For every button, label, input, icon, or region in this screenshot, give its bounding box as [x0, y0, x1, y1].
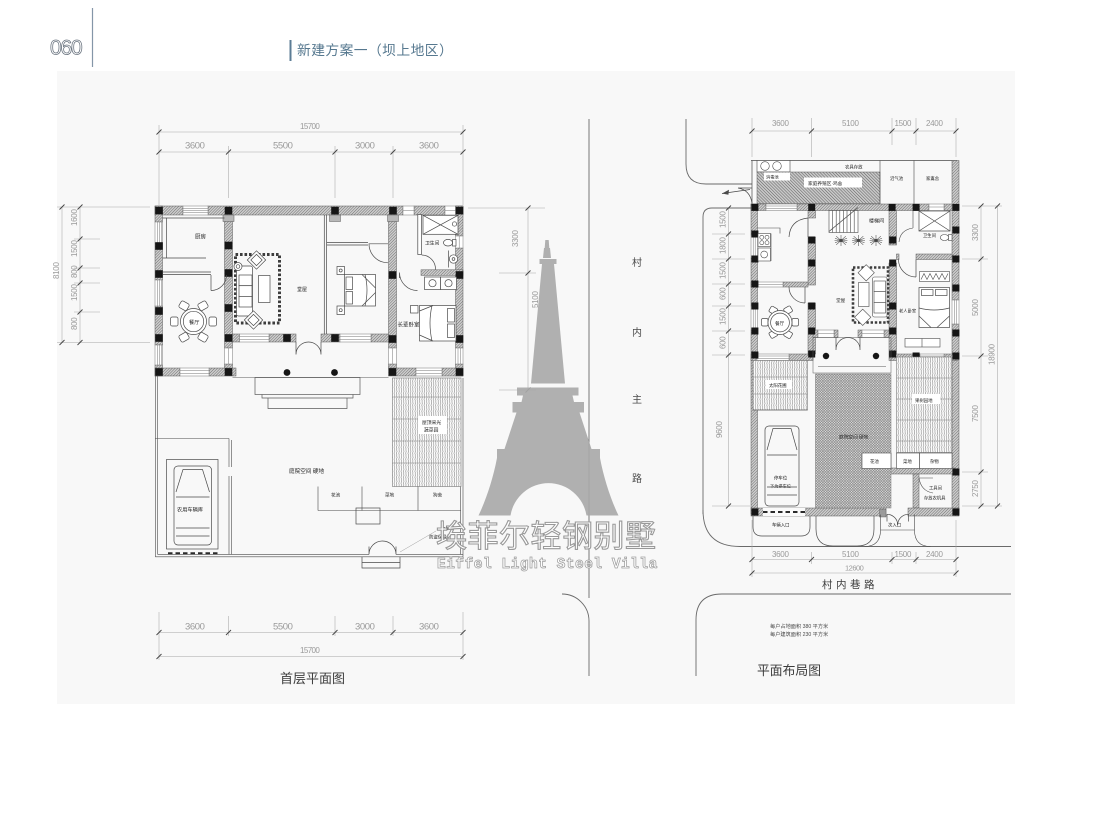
svg-text:3000: 3000	[355, 622, 375, 633]
svg-text:平面布局图: 平面布局图	[757, 663, 821, 678]
svg-text:路: 路	[632, 472, 642, 485]
svg-text:1500: 1500	[895, 119, 912, 128]
svg-text:每户建筑面积 230 平方米: 每户建筑面积 230 平方米	[770, 630, 829, 638]
svg-text:3000: 3000	[355, 141, 375, 152]
svg-text:1500: 1500	[895, 550, 912, 559]
svg-text:3300: 3300	[511, 230, 520, 247]
svg-text:家禽舍: 家禽舍	[926, 175, 940, 182]
svg-text:首层平面图: 首层平面图	[280, 671, 345, 686]
svg-text:1500: 1500	[70, 240, 79, 257]
svg-text:2400: 2400	[926, 550, 943, 559]
svg-text:1500: 1500	[719, 308, 728, 325]
svg-text:600: 600	[719, 336, 728, 349]
svg-text:5000: 5000	[971, 299, 980, 316]
svg-text:5100: 5100	[842, 119, 859, 128]
svg-text:1500: 1500	[719, 211, 728, 228]
svg-text:埃菲尔轻钢别墅: 埃菲尔轻钢别墅	[436, 519, 657, 554]
svg-text:太阳花圃: 太阳花圃	[769, 382, 787, 389]
svg-text:Eiffel Light Steel Villa: Eiffel Light Steel Villa	[437, 557, 658, 573]
svg-text:1500: 1500	[719, 262, 728, 279]
svg-text:车辆入口: 车辆入口	[772, 522, 790, 529]
svg-text:长辈卧室: 长辈卧室	[398, 321, 421, 329]
svg-text:下为停车位: 下为停车位	[770, 483, 791, 490]
svg-text:菜地: 菜地	[385, 492, 395, 499]
svg-text:花池: 花池	[331, 492, 341, 499]
svg-text:农具存放: 农具存放	[845, 164, 863, 171]
svg-text:花池: 花池	[870, 458, 879, 465]
svg-text:3600: 3600	[185, 141, 205, 152]
svg-text:内: 内	[632, 326, 642, 339]
svg-text:狗舍: 狗舍	[433, 492, 443, 499]
svg-text:次入口: 次入口	[888, 522, 901, 529]
svg-text:060: 060	[50, 37, 82, 60]
svg-text:每户占地面积 380 平方米: 每户占地面积 380 平方米	[770, 622, 829, 630]
svg-text:农用车辆库: 农用车辆库	[177, 506, 203, 514]
svg-text:家庭养殖区·鸡舍: 家庭养殖区·鸡舍	[808, 180, 843, 187]
svg-text:沼气池: 沼气池	[890, 175, 904, 182]
svg-text:1500: 1500	[70, 284, 79, 301]
svg-text:15700: 15700	[300, 646, 320, 655]
svg-text:菜地: 菜地	[903, 458, 912, 465]
svg-text:果树园地: 果树园地	[915, 397, 933, 404]
svg-text:停车位: 停车位	[774, 475, 788, 482]
svg-text:村: 村	[632, 256, 642, 269]
svg-text:村内巷路: 村内巷路	[822, 578, 878, 591]
svg-text:3600: 3600	[419, 622, 439, 633]
svg-text:主: 主	[632, 394, 642, 406]
svg-text:3600: 3600	[185, 622, 205, 633]
svg-text:9600: 9600	[715, 421, 724, 438]
svg-text:消毒池: 消毒池	[766, 174, 779, 181]
svg-text:庭院空间 硬地: 庭院空间 硬地	[839, 434, 869, 441]
svg-text:18900: 18900	[988, 343, 997, 365]
svg-text:5500: 5500	[273, 141, 293, 152]
svg-text:厨房: 厨房	[195, 233, 207, 241]
svg-text:1600: 1600	[70, 209, 79, 226]
svg-text:庭院空间 硬地: 庭院空间 硬地	[289, 467, 325, 475]
svg-text:12600: 12600	[845, 564, 864, 573]
svg-text:800: 800	[70, 265, 79, 278]
svg-text:餐厅: 餐厅	[775, 320, 785, 327]
svg-text:楼梯间: 楼梯间	[869, 218, 884, 225]
svg-text:7500: 7500	[971, 405, 980, 422]
svg-text:卫生间: 卫生间	[425, 240, 440, 247]
svg-text:15700: 15700	[300, 122, 320, 131]
svg-text:杂物: 杂物	[930, 458, 939, 465]
svg-text:堂屋: 堂屋	[836, 297, 846, 304]
svg-text:3600: 3600	[772, 119, 789, 128]
svg-text:堂屋: 堂屋	[297, 286, 307, 293]
svg-text:8100: 8100	[52, 262, 61, 279]
svg-text:蔬菜园: 蔬菜园	[424, 427, 439, 434]
svg-text:600: 600	[719, 287, 728, 300]
svg-text:卫生间: 卫生间	[923, 232, 936, 239]
svg-text:2750: 2750	[971, 480, 980, 497]
svg-text:5500: 5500	[273, 622, 293, 633]
svg-text:800: 800	[70, 317, 79, 330]
svg-text:工具间: 工具间	[929, 485, 942, 492]
svg-text:屋顶采光: 屋顶采光	[422, 419, 441, 426]
svg-text:3600: 3600	[419, 141, 439, 152]
svg-text:新建方案一（坝上地区）: 新建方案一（坝上地区）	[297, 42, 453, 58]
svg-text:老人卧室: 老人卧室	[899, 308, 917, 315]
svg-text:存放农机具: 存放农机具	[924, 495, 946, 502]
svg-text:1800: 1800	[719, 237, 728, 254]
svg-text:餐厅: 餐厅	[189, 318, 199, 326]
svg-text:5100: 5100	[842, 550, 859, 559]
svg-text:2400: 2400	[926, 119, 943, 128]
svg-text:3600: 3600	[772, 550, 789, 559]
svg-text:3300: 3300	[971, 224, 980, 241]
